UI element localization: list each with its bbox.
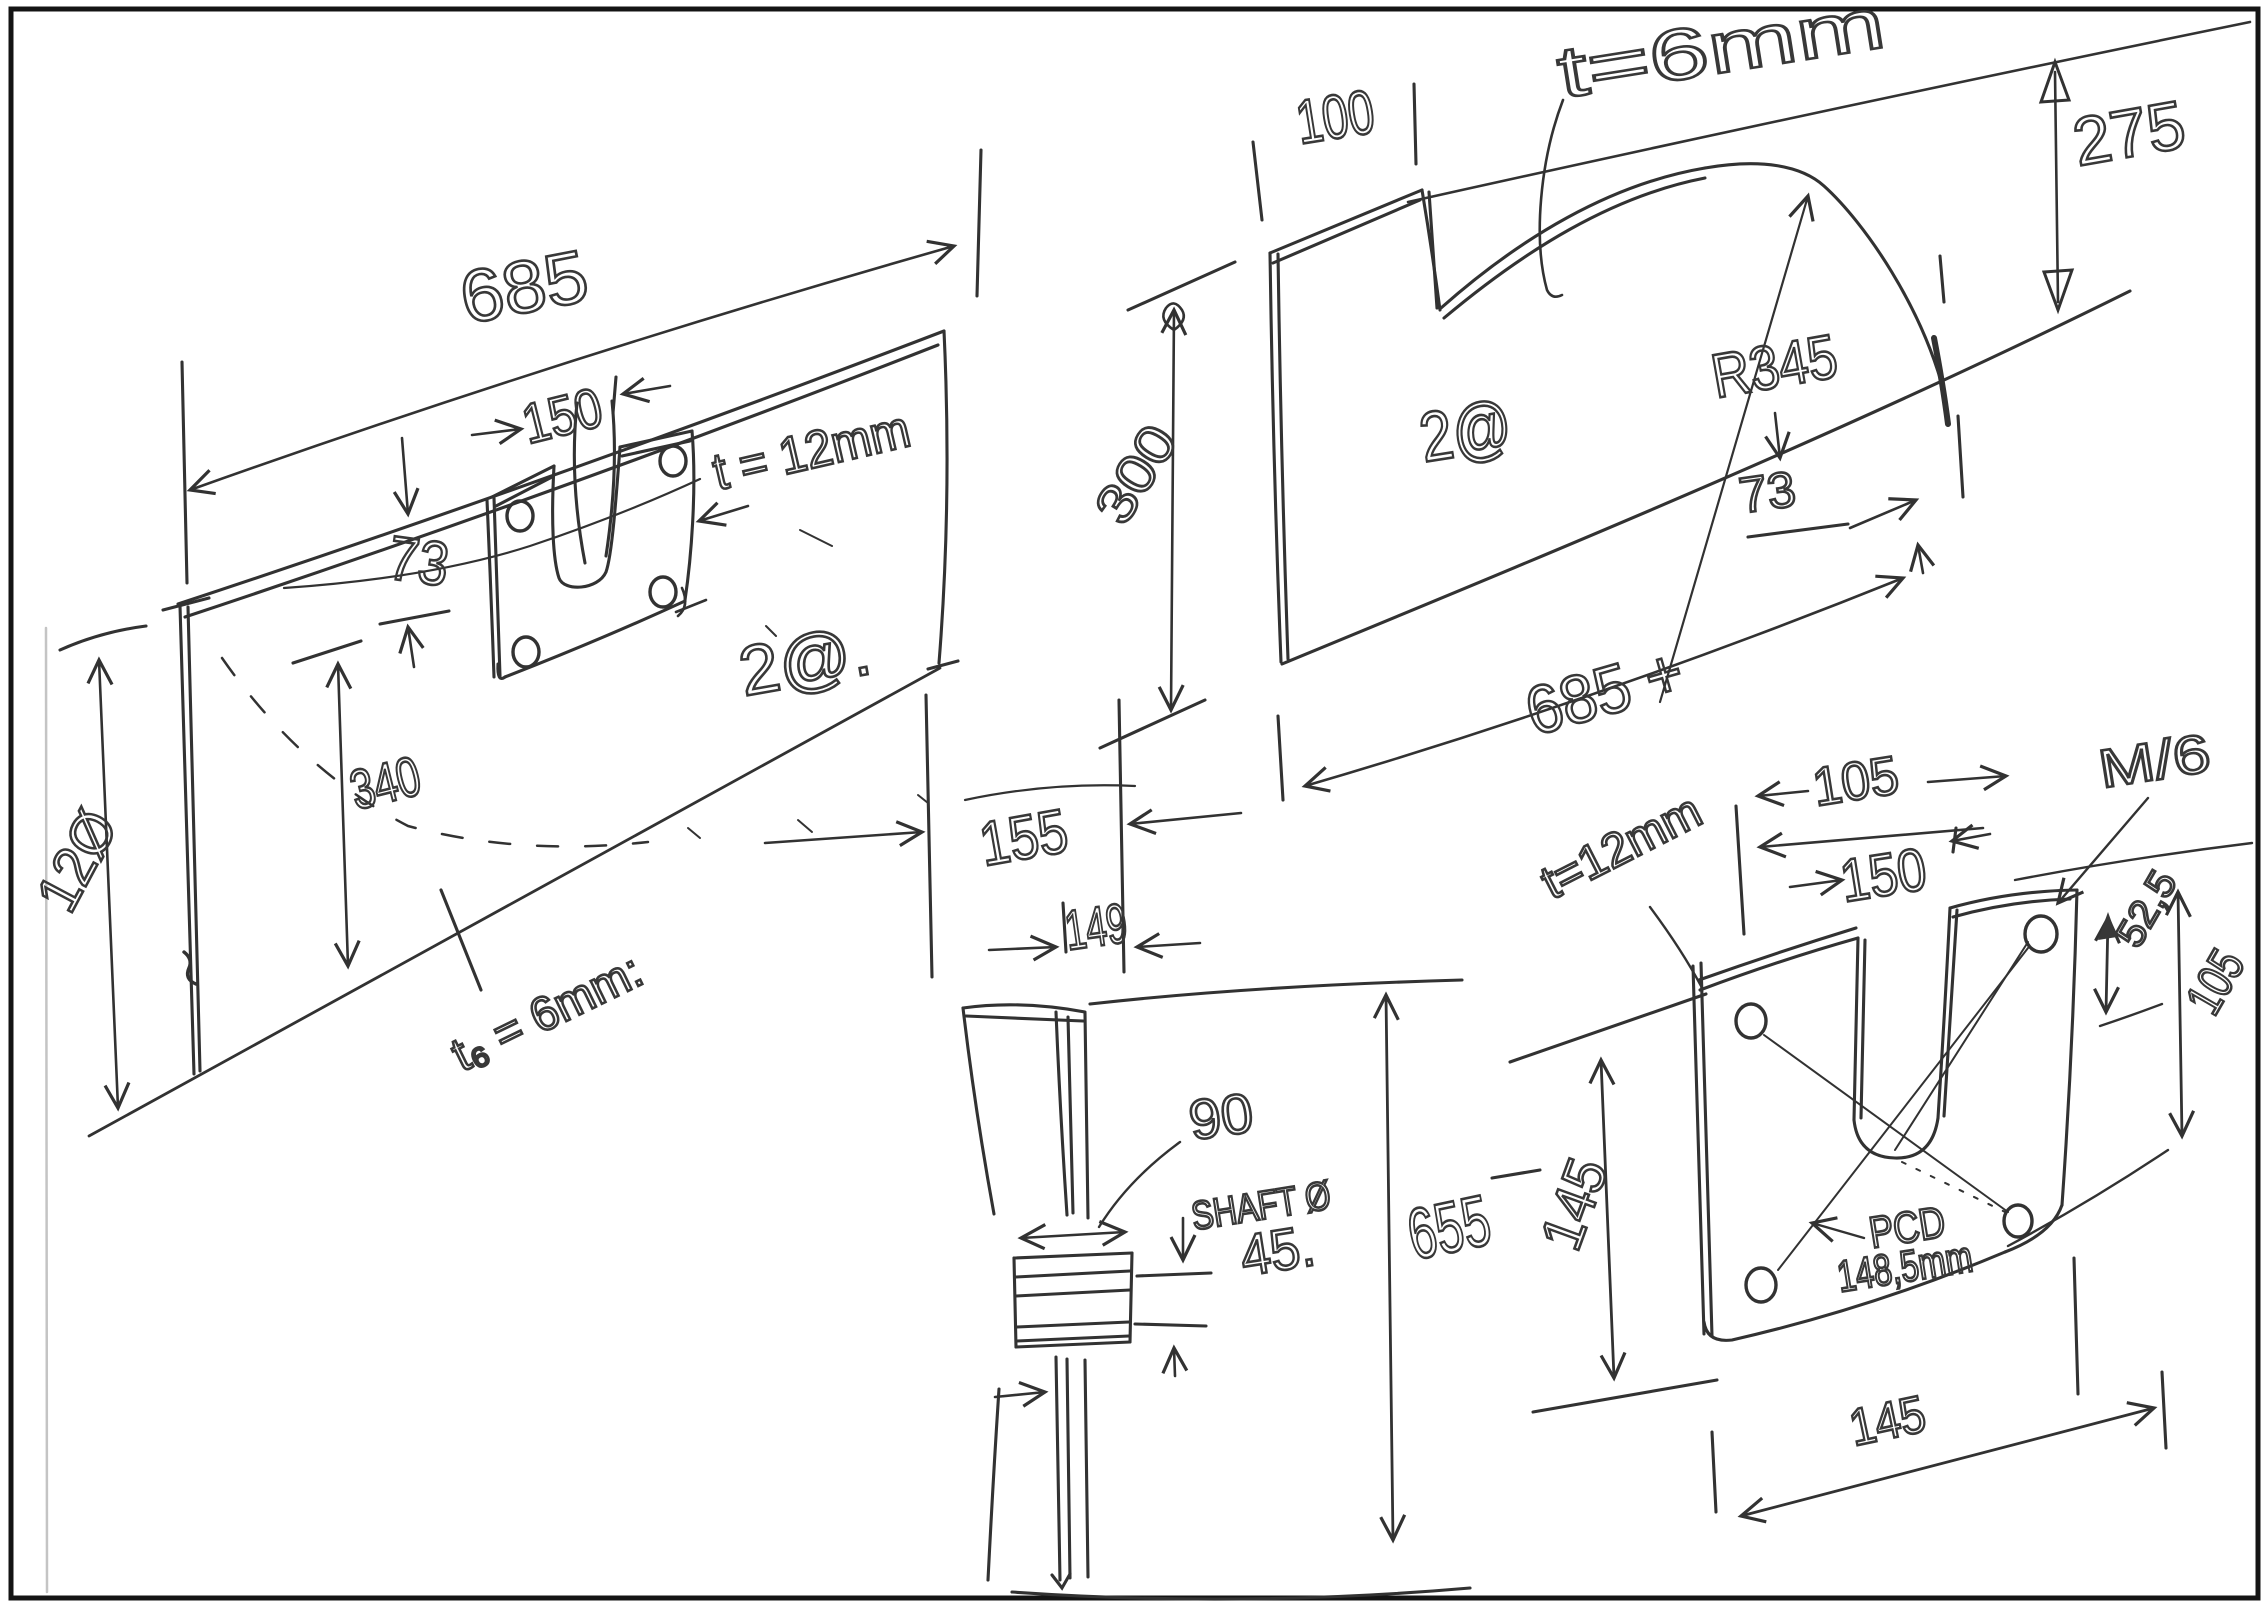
- svg-text:73: 73: [1736, 461, 1799, 524]
- svg-text:12Ø: 12Ø: [24, 800, 130, 922]
- svg-text:t=12mm: t=12mm: [1533, 784, 1710, 909]
- svg-text:M/6: M/6: [2094, 723, 2214, 800]
- svg-text:150: 150: [516, 375, 609, 455]
- svg-text:t₆ = 6mm:: t₆ = 6mm:: [444, 944, 651, 1082]
- svg-text:100: 100: [1291, 77, 1379, 157]
- svg-text:R345: R345: [1706, 322, 1842, 412]
- svg-text:105: 105: [2175, 940, 2255, 1023]
- svg-text:2@: 2@: [1414, 385, 1517, 476]
- svg-text:145: 145: [1528, 1150, 1621, 1259]
- svg-text:148,5mm: 148,5mm: [1834, 1232, 1976, 1302]
- svg-text:2@.: 2@.: [733, 611, 877, 711]
- svg-text:145: 145: [1844, 1385, 1930, 1458]
- svg-text:155: 155: [974, 797, 1073, 880]
- svg-text:t=6mm: t=6mm: [1552, 0, 1890, 114]
- svg-text:t = 12mm: t = 12mm: [708, 400, 916, 502]
- svg-text:90: 90: [1185, 1081, 1257, 1152]
- svg-text:149: 149: [1061, 891, 1131, 962]
- svg-text:340: 340: [344, 744, 427, 822]
- svg-text:73: 73: [384, 524, 453, 601]
- svg-text:45.: 45.: [1236, 1213, 1319, 1289]
- svg-text:685 +: 685 +: [1517, 633, 1692, 750]
- svg-text:655: 655: [1401, 1180, 1498, 1275]
- svg-text:105: 105: [1808, 745, 1902, 818]
- svg-text:52,5: 52,5: [2108, 863, 2186, 954]
- svg-text:150: 150: [1836, 835, 1931, 915]
- svg-text:685: 685: [453, 234, 594, 340]
- svg-text:275: 275: [2067, 86, 2190, 180]
